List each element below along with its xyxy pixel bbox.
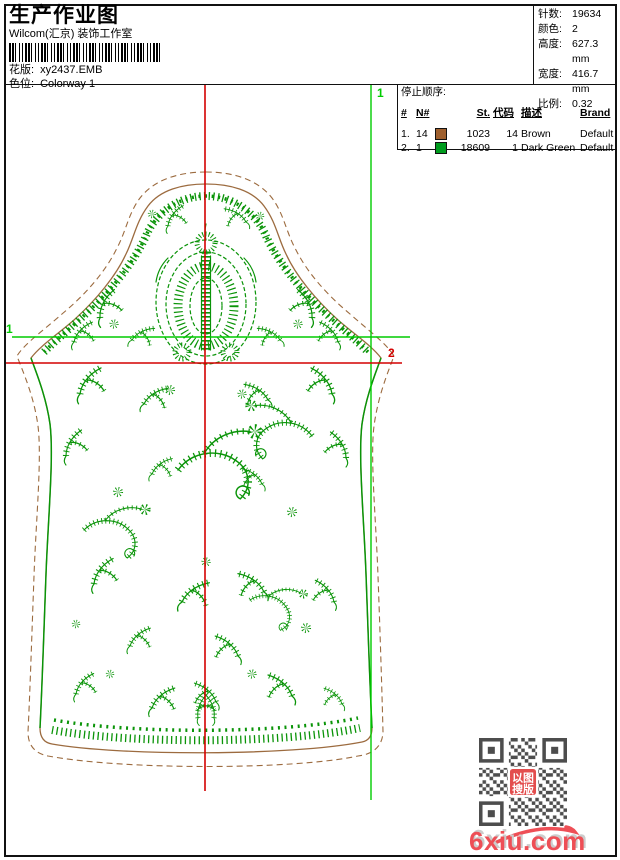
qr-code: 以图 搜版	[479, 738, 567, 826]
green-marker-label: 1	[377, 86, 384, 100]
page-title: 生产作业图	[9, 4, 519, 27]
floral-scatter	[57, 205, 356, 726]
stamp-text-line1: 以图	[512, 772, 534, 785]
header-block: 生产作业图 Wilcom(汇京) 装饰工作室 花版: xy2437.EMB 色位…	[9, 4, 519, 91]
colors-label: 颜色:	[538, 22, 572, 37]
barcode	[9, 43, 161, 62]
design-file-value: xy2437.EMB	[40, 64, 102, 78]
qr-finder-top-left	[479, 738, 509, 768]
green-marker-label: 1	[6, 322, 13, 336]
design-file-label: 花版:	[9, 64, 34, 78]
stitches-value: 19634	[572, 7, 601, 22]
header-divider-vertical	[533, 5, 534, 84]
production-worksheet: 生产作业图 Wilcom(汇京) 装饰工作室 花版: xy2437.EMB 色位…	[0, 0, 620, 860]
qr-finder-top-right	[537, 738, 567, 768]
studio-name: Wilcom(汇京) 装饰工作室	[9, 28, 519, 41]
height-label: 高度:	[538, 37, 572, 67]
medallion-motif	[156, 224, 256, 364]
site-watermark: 6xiu.com	[469, 826, 609, 857]
height-value: 627.3 mm	[572, 37, 616, 67]
red-marker-label: 2	[388, 346, 395, 360]
stitches-label: 针数:	[538, 7, 572, 22]
stamp: 以图 搜版	[508, 767, 538, 797]
stamp-text-line2: 搜版	[512, 782, 534, 796]
colors-value: 2	[572, 22, 578, 37]
left-seam-stitching	[31, 358, 51, 728]
